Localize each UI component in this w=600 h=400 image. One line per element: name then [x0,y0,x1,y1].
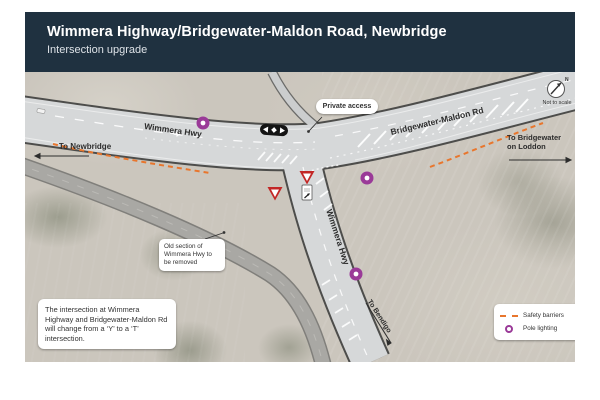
pole-lighting-icon [505,325,513,333]
legend-row-safety-barriers: Safety barriers [500,309,575,322]
two-way-marker-icon [260,124,289,137]
car-icon [37,108,45,113]
give-way-sign-icon [268,187,283,201]
not-to-scale-label: Not to scale [529,100,575,106]
direction-label-to-bridgewater: To Bridgewater on Loddon [507,133,561,151]
old-section-callout: Old section of Wimmera Hwy to be removed [159,239,225,271]
legend-label: Safety barriers [523,312,564,319]
header-banner: Wimmera Highway/Bridgewater-Maldon Road,… [25,12,575,72]
private-access-label: Private access [316,99,378,114]
intersection-sign-icon [302,185,312,200]
direction-label-to-newbridge: To Newbridge [39,142,131,151]
page: Wimmera Highway/Bridgewater-Maldon Road,… [0,0,600,400]
footer: DOT0345/19 Australian Government VICTORI… [0,362,600,400]
page-title: Wimmera Highway/Bridgewater-Maldon Road,… [47,24,575,40]
map-area: N Wimmera Hwy Bridgewater-Maldon Rd Wimm… [25,72,575,362]
intersection-info-box: The intersection at Wimmera Highway and … [38,299,176,349]
compass-north-letter: N [565,77,569,83]
page-subtitle: Intersection upgrade [47,44,575,56]
legend-label: Pole lighting [523,325,557,332]
pole-light-marker [361,172,374,185]
direction-label-line: on Loddon [507,142,561,151]
map-legend: Safety barriers Pole lighting [494,304,575,340]
direction-label-line: To Bridgewater [507,133,561,142]
safety-barrier-icon [500,315,518,317]
legend-row-pole-lighting: Pole lighting [500,322,575,335]
